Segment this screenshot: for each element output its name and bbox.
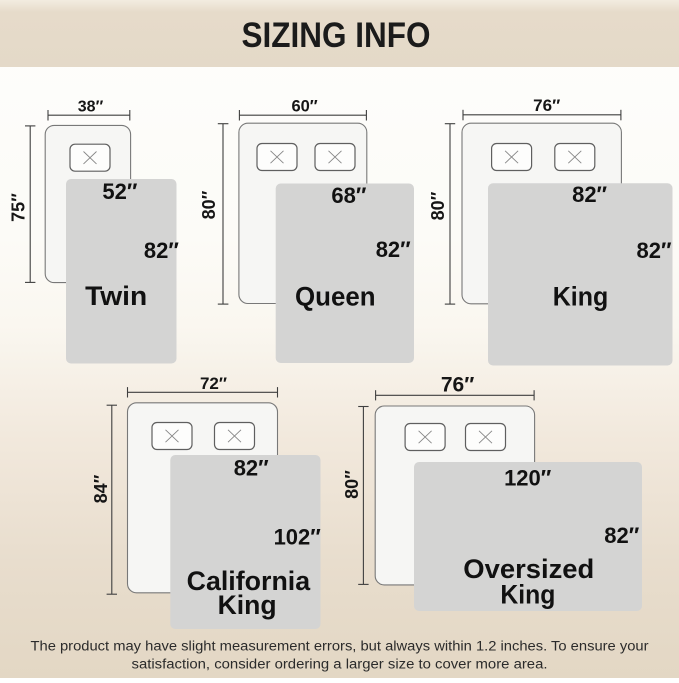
svg-text:80″: 80″ [342, 470, 362, 499]
svg-text:72″: 72″ [200, 374, 227, 393]
svg-text:120″: 120″ [504, 465, 552, 490]
svg-text:82″: 82″ [144, 238, 179, 263]
svg-text:82″: 82″ [604, 523, 639, 548]
svg-text:The product may have slight me: The product may have slight measurement … [31, 639, 649, 655]
svg-text:82″: 82″ [572, 182, 607, 207]
svg-text:68″: 68″ [331, 183, 366, 208]
svg-text:76″: 76″ [441, 373, 474, 396]
svg-text:King: King [500, 580, 555, 610]
svg-text:80″: 80″ [428, 191, 448, 220]
svg-text:60″: 60″ [291, 98, 317, 116]
svg-text:Twin: Twin [85, 281, 147, 311]
svg-text:76″: 76″ [533, 96, 560, 115]
svg-text:King: King [553, 281, 609, 311]
svg-text:80″: 80″ [199, 190, 219, 219]
svg-text:38″: 38″ [78, 99, 104, 116]
svg-text:Queen: Queen [295, 281, 376, 311]
svg-text:52″: 52″ [102, 179, 137, 204]
svg-text:satisfaction, consider orderin: satisfaction, consider ordering a larger… [132, 657, 548, 673]
svg-text:82″: 82″ [376, 237, 411, 262]
svg-text:SIZING INFO: SIZING INFO [242, 15, 431, 55]
svg-text:King: King [218, 590, 277, 620]
svg-text:82″: 82″ [234, 456, 269, 481]
svg-text:84″: 84″ [91, 474, 111, 503]
svg-text:75″: 75″ [9, 193, 29, 222]
svg-text:82″: 82″ [636, 238, 671, 263]
svg-text:102″: 102″ [274, 525, 322, 550]
